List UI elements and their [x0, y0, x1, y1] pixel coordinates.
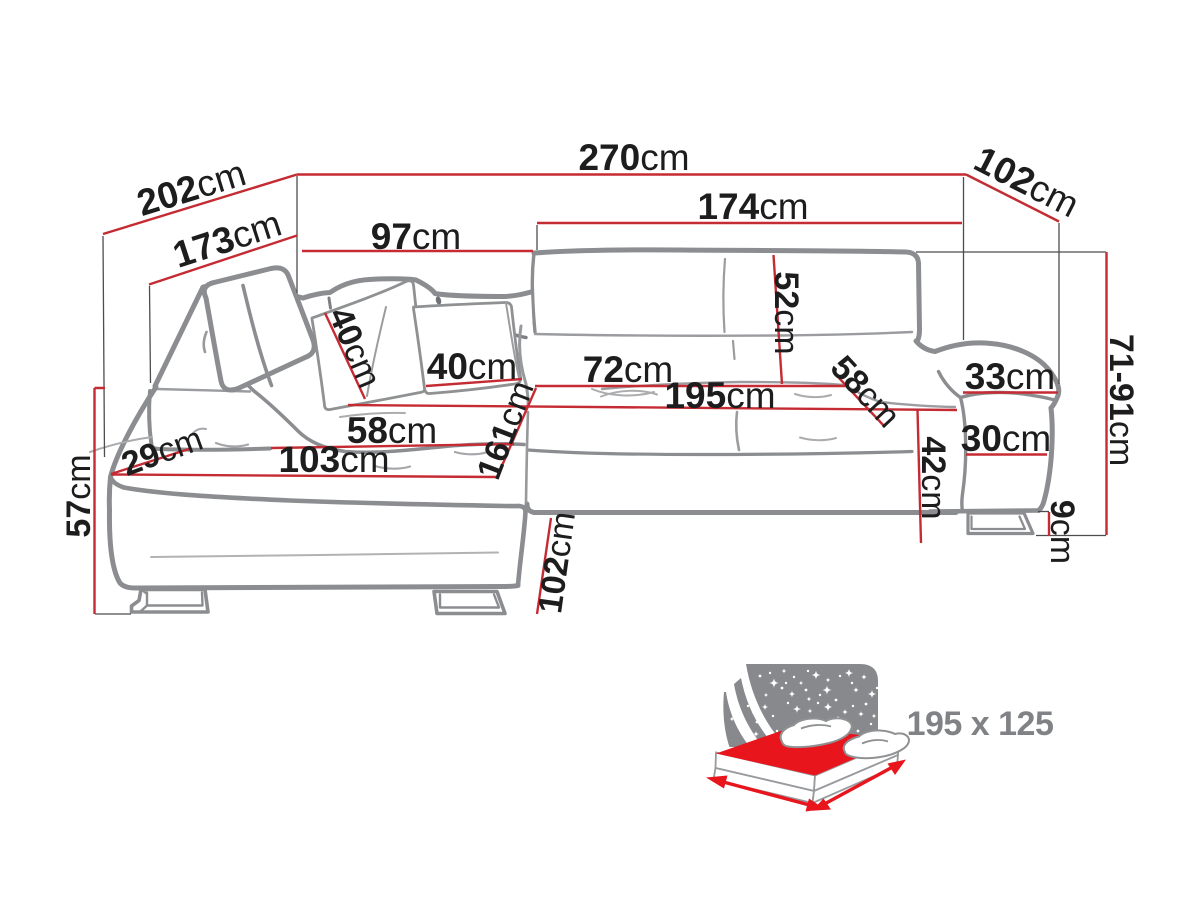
svg-text:30cm: 30cm — [961, 418, 1051, 459]
svg-text:97cm: 97cm — [371, 216, 461, 257]
svg-text:72cm: 72cm — [583, 349, 673, 390]
svg-text:33cm: 33cm — [965, 356, 1055, 397]
svg-text:58cm: 58cm — [347, 410, 437, 451]
svg-text:195cm: 195cm — [664, 375, 775, 416]
svg-text:71-91cm: 71-91cm — [1102, 334, 1140, 466]
svg-text:57cm: 57cm — [60, 454, 98, 537]
svg-text:270cm: 270cm — [578, 137, 689, 178]
svg-text:42cm: 42cm — [914, 436, 952, 519]
svg-text:174cm: 174cm — [697, 186, 808, 227]
svg-text:9cm: 9cm — [1043, 500, 1081, 564]
svg-text:195 x 125: 195 x 125 — [907, 705, 1054, 743]
svg-text:52cm: 52cm — [767, 271, 805, 354]
